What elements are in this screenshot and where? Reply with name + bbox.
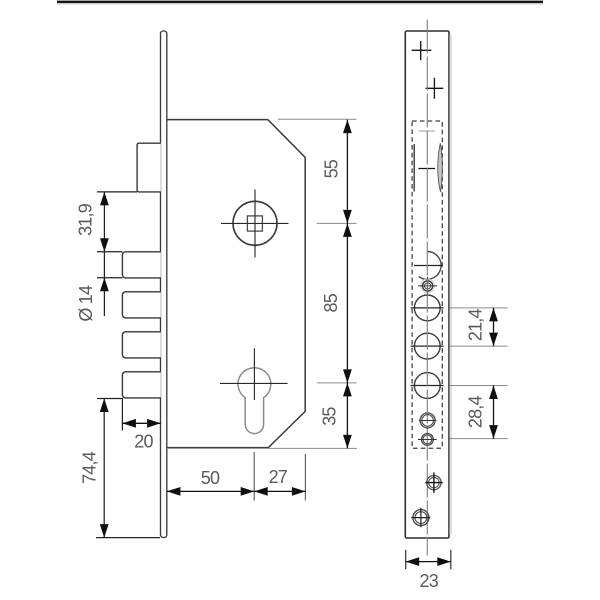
svg-text:74,4: 74,4 [80,451,100,484]
svg-text:35: 35 [320,407,340,426]
svg-text:85: 85 [321,293,341,312]
svg-text:28,4: 28,4 [466,395,486,428]
svg-text:31,9: 31,9 [76,203,96,236]
svg-text:55: 55 [322,159,342,178]
svg-text:20: 20 [134,431,153,451]
svg-text:27: 27 [269,467,288,487]
svg-text:Ø 14: Ø 14 [76,285,96,322]
svg-text:21,4: 21,4 [466,308,486,341]
svg-text:50: 50 [201,468,220,488]
svg-text:23: 23 [419,571,438,591]
